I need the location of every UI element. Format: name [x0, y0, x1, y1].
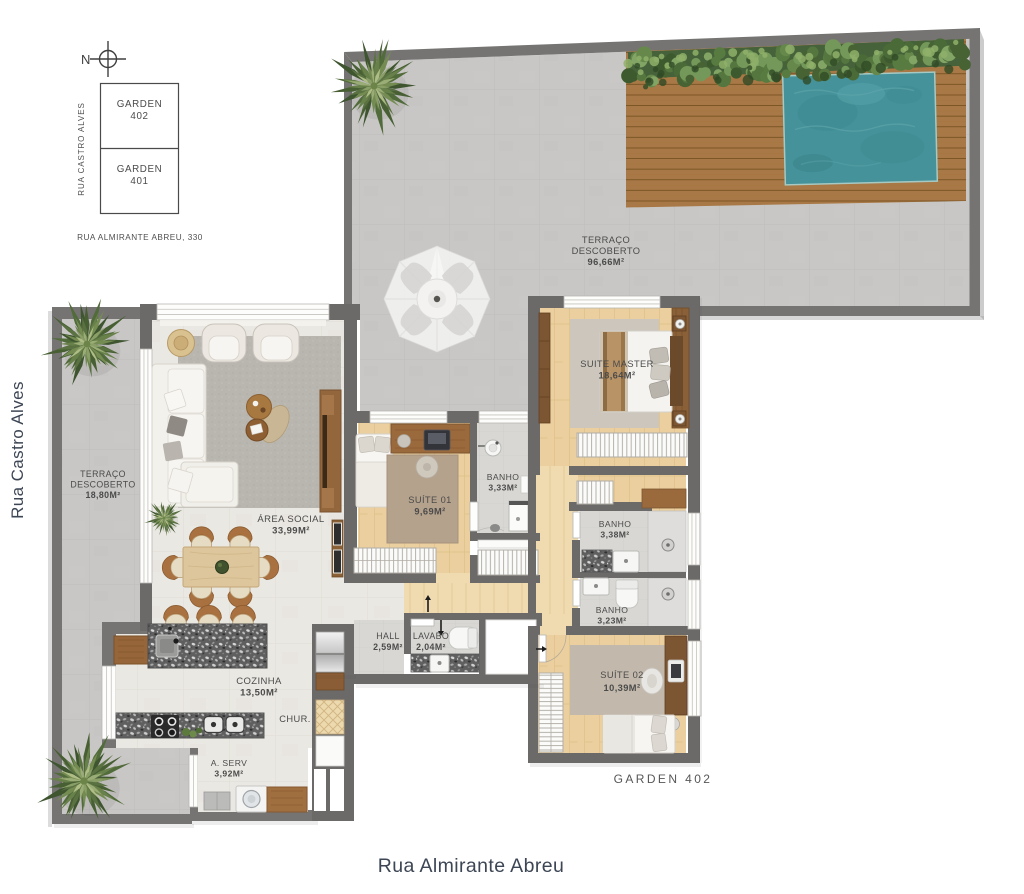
svg-text:GARDEN: GARDEN: [117, 99, 163, 110]
svg-text:N: N: [81, 52, 90, 67]
svg-text:9,69M²: 9,69M²: [414, 507, 445, 517]
svg-text:DESCOBERTO: DESCOBERTO: [70, 480, 135, 490]
svg-text:RUA ALMIRANTE ABREU, 330: RUA ALMIRANTE ABREU, 330: [77, 233, 203, 242]
svg-text:SUÍTE 02: SUÍTE 02: [600, 670, 644, 680]
svg-text:3,23M²: 3,23M²: [597, 616, 626, 626]
svg-text:33,99M²: 33,99M²: [272, 526, 310, 537]
svg-text:SUÍTE 01: SUÍTE 01: [408, 495, 452, 505]
svg-text:10,39M²: 10,39M²: [604, 683, 641, 693]
svg-text:SUITE MASTER: SUITE MASTER: [580, 359, 654, 369]
svg-text:TERRAÇO: TERRAÇO: [582, 235, 630, 245]
svg-text:18,80M²: 18,80M²: [85, 490, 120, 500]
svg-text:ÁREA SOCIAL: ÁREA SOCIAL: [257, 514, 324, 525]
svg-text:BANHO: BANHO: [487, 472, 520, 482]
svg-text:Rua Almirante Abreu: Rua Almirante Abreu: [378, 855, 564, 877]
svg-text:A. SERV: A. SERV: [211, 758, 248, 768]
svg-text:96,66M²: 96,66M²: [588, 257, 625, 267]
svg-text:BANHO: BANHO: [599, 519, 632, 529]
svg-text:GARDEN: GARDEN: [117, 164, 163, 175]
svg-text:CHUR.: CHUR.: [279, 714, 310, 724]
svg-text:2,59M²: 2,59M²: [373, 642, 403, 652]
svg-text:GARDEN 402: GARDEN 402: [614, 772, 713, 786]
svg-text:3,38M²: 3,38M²: [600, 530, 629, 540]
svg-text:401: 401: [130, 176, 148, 187]
svg-text:BANHO: BANHO: [596, 605, 629, 615]
svg-text:13,50M²: 13,50M²: [240, 688, 278, 699]
svg-text:Rua Castro Alves: Rua Castro Alves: [8, 381, 27, 519]
svg-text:402: 402: [130, 111, 148, 122]
svg-text:3,92M²: 3,92M²: [214, 769, 243, 779]
svg-text:3,33M²: 3,33M²: [488, 483, 517, 493]
svg-text:18,64M²: 18,64M²: [599, 371, 636, 381]
svg-text:DESCOBERTO: DESCOBERTO: [572, 246, 641, 256]
svg-text:LAVABO: LAVABO: [413, 631, 449, 641]
svg-text:COZINHA: COZINHA: [236, 676, 282, 687]
svg-text:TERRAÇO: TERRAÇO: [80, 469, 126, 479]
svg-text:RUA CASTRO ALVES: RUA CASTRO ALVES: [77, 102, 86, 195]
svg-text:HALL: HALL: [376, 631, 400, 641]
svg-text:2,04M²: 2,04M²: [416, 642, 446, 652]
